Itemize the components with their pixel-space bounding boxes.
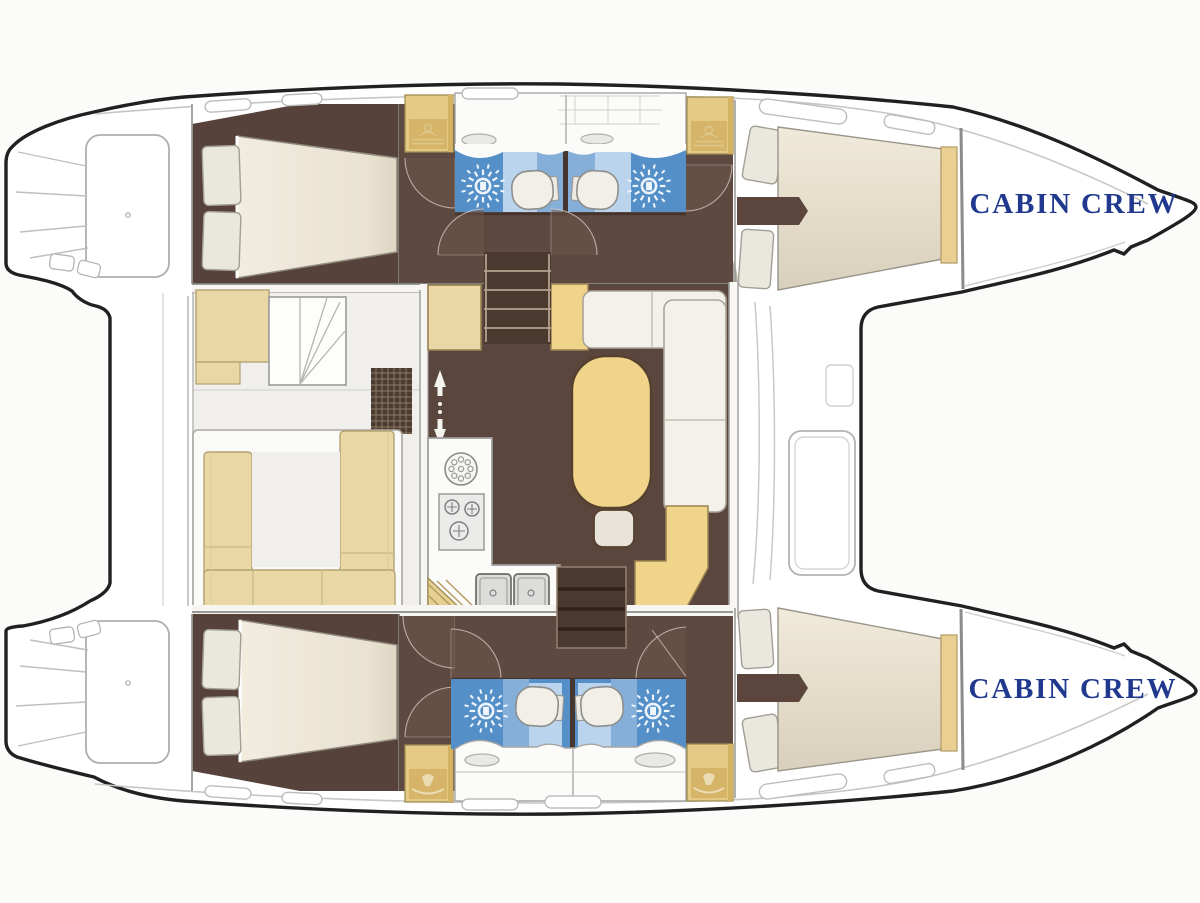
svg-text:CABIN CREW: CABIN CREW <box>970 188 1179 220</box>
svg-text:CABIN CREW: CABIN CREW <box>969 673 1178 705</box>
